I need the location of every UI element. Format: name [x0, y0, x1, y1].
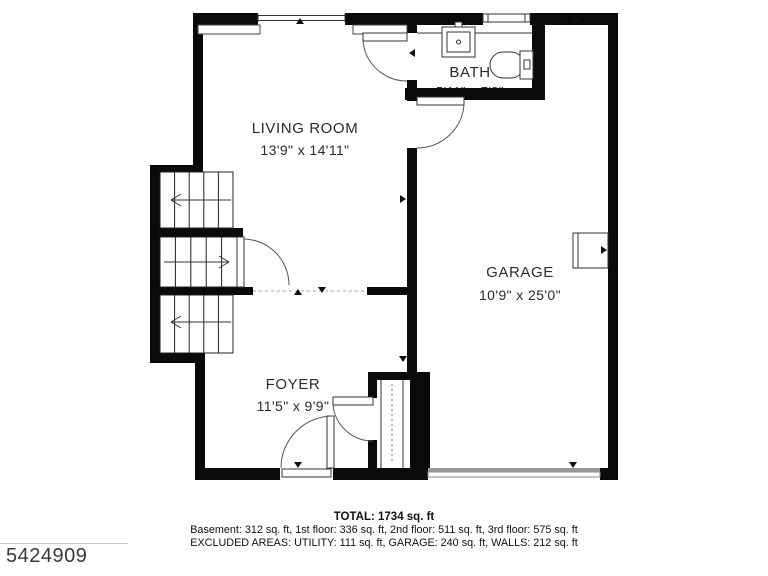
room-label-bath: BATH [449, 64, 490, 81]
room-dims-garage: 10'9" x 25'0" [479, 287, 561, 303]
garage-door-icon [428, 468, 600, 477]
listing-id: 5424909 [6, 545, 87, 568]
floor-plan-page: 5'11" x 7'8" [0, 0, 768, 576]
garage-appliance-icon [573, 233, 608, 268]
bath-door-icon [363, 33, 407, 81]
floor-areas-text: Basement: 312 sq. ft, 1st floor: 336 sq.… [0, 524, 768, 537]
utility-door-icon [333, 397, 373, 441]
photo-edge-line [0, 543, 128, 544]
room-label-foyer: FOYER [266, 376, 321, 393]
sink-icon [442, 22, 475, 57]
room-dims-living-room: 13'9" x 14'11" [260, 142, 349, 158]
utility-closet [381, 380, 403, 468]
room-labels: LIVING ROOM 13'9" x 14'11" BATH GARAGE 1… [252, 64, 561, 414]
total-area-text: TOTAL: 1734 sq. ft [0, 511, 768, 524]
toilet-icon [490, 51, 533, 79]
garage-entry-door-icon [417, 97, 464, 148]
room-dims-foyer: 11'5" x 9'9" [257, 398, 330, 414]
room-label-garage: GARAGE [486, 264, 554, 281]
floor-plan-drawing: 5'11" x 7'8" [0, 0, 768, 576]
room-label-living-room: LIVING ROOM [252, 120, 359, 137]
front-door-icon [281, 416, 334, 477]
stair-door-icon [237, 237, 289, 287]
area-summary: TOTAL: 1734 sq. ft Basement: 312 sq. ft,… [0, 511, 768, 550]
